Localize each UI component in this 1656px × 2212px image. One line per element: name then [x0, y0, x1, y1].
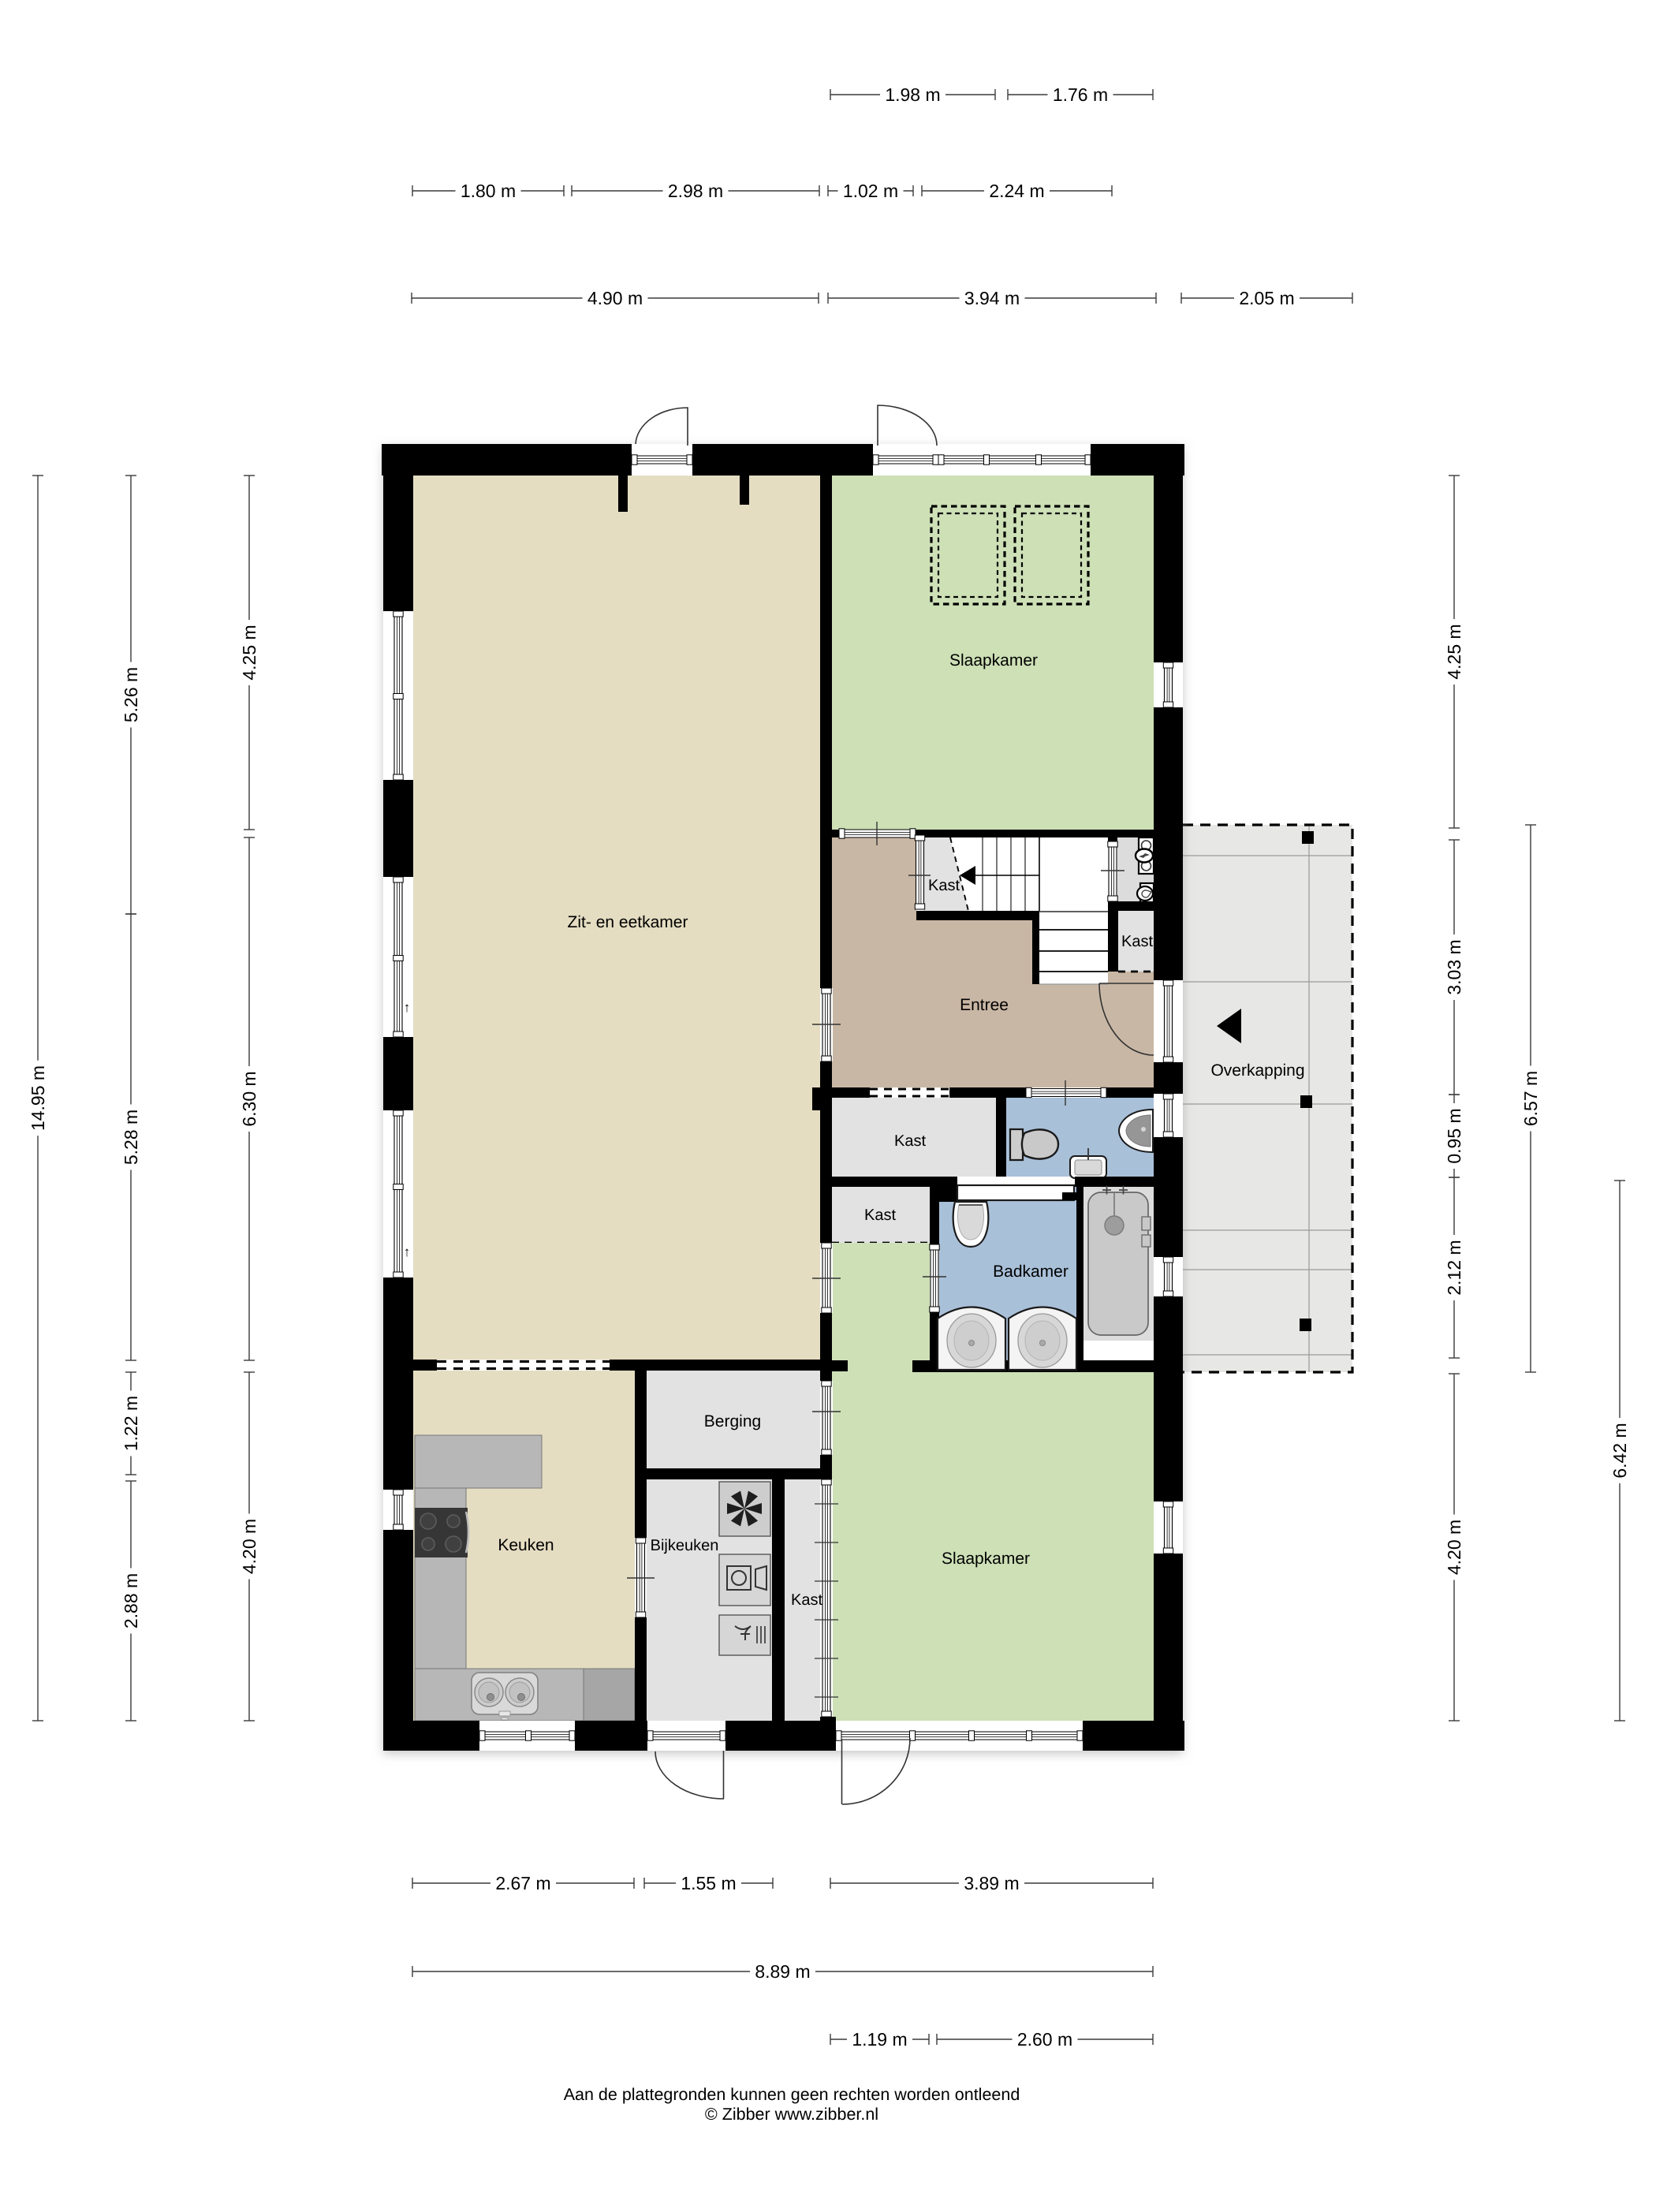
svg-text:2.24 m: 2.24 m [989, 181, 1044, 201]
svg-text:4.25 m: 4.25 m [239, 625, 259, 680]
svg-text:Zit- en eetkamer: Zit- en eetkamer [568, 913, 688, 931]
svg-text:3.94 m: 3.94 m [964, 288, 1020, 308]
svg-text:1.80 m: 1.80 m [461, 181, 516, 201]
svg-text:8.89 m: 8.89 m [755, 1961, 810, 1982]
svg-text:Kast: Kast [928, 877, 960, 894]
svg-text:2.05 m: 2.05 m [1239, 288, 1294, 308]
svg-text:14.95 m: 14.95 m [28, 1065, 48, 1131]
svg-text:6.57 m: 6.57 m [1520, 1071, 1541, 1126]
svg-text:2.60 m: 2.60 m [1017, 2029, 1072, 2050]
svg-text:5.28 m: 5.28 m [121, 1110, 141, 1165]
svg-text:Badkamer: Badkamer [993, 1263, 1069, 1281]
svg-text:Berging: Berging [704, 1412, 761, 1431]
svg-text:4.25 m: 4.25 m [1444, 624, 1464, 679]
svg-text:1.76 m: 1.76 m [1053, 84, 1108, 105]
svg-text:Keuken: Keuken [498, 1536, 554, 1554]
svg-text:Bijkeuken: Bijkeuken [651, 1537, 719, 1554]
svg-text:2.88 m: 2.88 m [121, 1573, 141, 1628]
svg-text:Aan de plattegronden kunnen ge: Aan de plattegronden kunnen geen rechten… [564, 2085, 1020, 2104]
svg-text:Kast: Kast [791, 1591, 822, 1609]
svg-text:4.20 m: 4.20 m [1444, 1520, 1464, 1575]
svg-text:1.98 m: 1.98 m [885, 84, 940, 105]
svg-text:Kast: Kast [1121, 933, 1153, 950]
svg-text:Kast: Kast [894, 1132, 926, 1150]
svg-text:6.30 m: 6.30 m [239, 1071, 259, 1126]
svg-text:6.42 m: 6.42 m [1609, 1423, 1630, 1478]
svg-text:4.90 m: 4.90 m [587, 288, 643, 308]
svg-text:4.20 m: 4.20 m [239, 1519, 259, 1574]
svg-text:© Zibber www.zibber.nl: © Zibber www.zibber.nl [705, 2105, 878, 2124]
svg-text:0.95 m: 0.95 m [1444, 1108, 1464, 1163]
svg-text:Overkapping: Overkapping [1210, 1061, 1304, 1080]
svg-text:5.26 m: 5.26 m [121, 667, 141, 722]
svg-text:Slaapkamer: Slaapkamer [949, 651, 1038, 670]
svg-text:Kast: Kast [864, 1207, 896, 1224]
svg-text:1.22 m: 1.22 m [121, 1396, 141, 1451]
svg-text:Slaapkamer: Slaapkamer [942, 1550, 1030, 1568]
svg-text:2.67 m: 2.67 m [495, 1873, 550, 1893]
svg-text:↑: ↑ [404, 1000, 411, 1015]
svg-text:1.02 m: 1.02 m [843, 181, 898, 201]
svg-text:1.19 m: 1.19 m [852, 2029, 907, 2050]
svg-text:2.12 m: 2.12 m [1444, 1240, 1464, 1295]
svg-text:↑: ↑ [404, 1244, 411, 1259]
svg-text:3.03 m: 3.03 m [1444, 939, 1464, 994]
svg-text:1.55 m: 1.55 m [681, 1873, 736, 1893]
svg-text:Entree: Entree [960, 996, 1009, 1014]
svg-text:2.98 m: 2.98 m [668, 181, 723, 201]
svg-text:3.89 m: 3.89 m [964, 1873, 1019, 1893]
